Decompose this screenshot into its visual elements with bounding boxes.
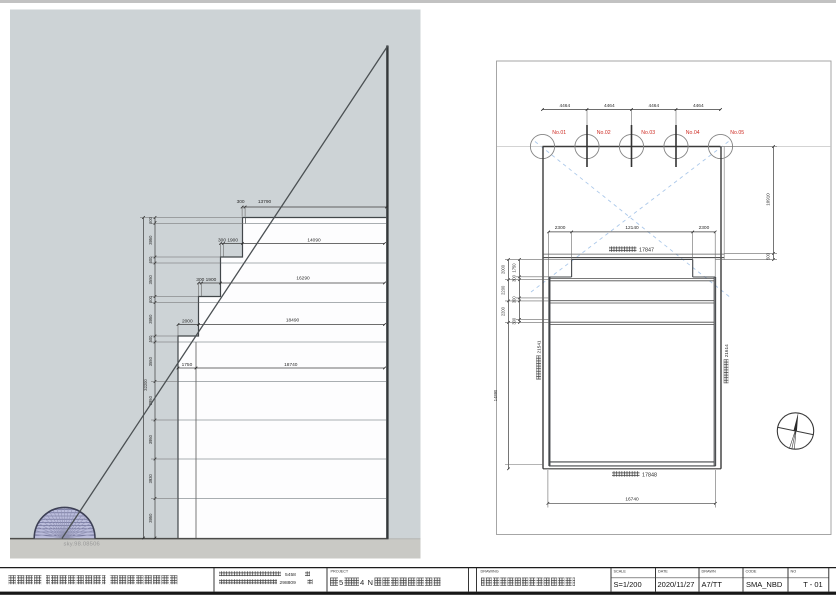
- svg-text:600: 600: [148, 295, 153, 303]
- svg-text:21614: 21614: [724, 344, 729, 357]
- svg-text:2020/11/27: 2020/11/27: [658, 580, 695, 589]
- svg-text:1750: 1750: [511, 263, 516, 273]
- svg-text:DRAWING: DRAWING: [481, 569, 499, 573]
- svg-text:21541: 21541: [536, 340, 541, 353]
- svg-text:CODE: CODE: [746, 570, 757, 574]
- svg-text:T - 01: T - 01: [803, 580, 822, 589]
- svg-text:DATE: DATE: [658, 570, 668, 574]
- svg-text:2200: 2200: [500, 306, 505, 316]
- svg-text:5458: 5458: [285, 572, 296, 578]
- svg-text:600: 600: [148, 256, 153, 264]
- svg-text:12140: 12140: [625, 225, 639, 231]
- svg-text:500: 500: [148, 335, 153, 343]
- svg-text:18490: 18490: [286, 318, 300, 324]
- svg-text:3950: 3950: [148, 513, 153, 523]
- svg-text:DRAWN: DRAWN: [702, 570, 716, 574]
- svg-text:PROJECT: PROJECT: [331, 569, 349, 573]
- svg-text:2300: 2300: [555, 225, 566, 231]
- svg-text:2200: 2200: [500, 285, 505, 295]
- svg-text:No.02: No.02: [597, 130, 611, 136]
- svg-text:No.04: No.04: [686, 130, 700, 136]
- svg-text:300: 300: [511, 274, 516, 282]
- svg-text:SMA_NBD: SMA_NBD: [746, 580, 783, 589]
- svg-text:3550: 3550: [148, 356, 153, 366]
- svg-text:3950: 3950: [148, 235, 153, 245]
- svg-text:14890: 14890: [493, 389, 498, 401]
- svg-text:NO: NO: [791, 570, 797, 574]
- svg-text:3550: 3550: [148, 275, 153, 285]
- svg-text:16290: 16290: [296, 275, 310, 281]
- svg-text:600: 600: [148, 216, 153, 224]
- svg-text:No.05: No.05: [730, 130, 744, 136]
- svg-text:2300: 2300: [699, 225, 710, 231]
- svg-text:17847: 17847: [639, 248, 654, 254]
- svg-text:14090: 14090: [307, 237, 321, 243]
- svg-text:3950: 3950: [148, 314, 153, 324]
- svg-text:3930: 3930: [148, 474, 153, 484]
- svg-text:16740: 16740: [625, 497, 639, 503]
- svg-text:No.01: No.01: [552, 130, 566, 136]
- svg-text:4464: 4464: [693, 103, 704, 109]
- svg-text:300: 300: [511, 317, 516, 325]
- svg-text:4464: 4464: [559, 103, 570, 109]
- svg-text:300: 300: [237, 199, 245, 205]
- svg-text:298809: 298809: [280, 580, 297, 586]
- svg-text:S=1/200: S=1/200: [614, 580, 642, 589]
- svg-text:18740: 18740: [284, 362, 298, 368]
- svg-text:SCALE: SCALE: [614, 570, 627, 574]
- svg-text:500: 500: [765, 252, 770, 260]
- svg-text:2000: 2000: [182, 319, 193, 325]
- svg-text:32200: 32200: [143, 379, 148, 391]
- svg-text:300 1900: 300 1900: [196, 277, 216, 283]
- svg-text:N: N: [368, 578, 373, 587]
- svg-text:300: 300: [511, 296, 516, 304]
- svg-text:No.03: No.03: [641, 130, 655, 136]
- svg-text:2000: 2000: [500, 264, 505, 274]
- svg-text:17848: 17848: [642, 472, 657, 478]
- svg-text:5: 5: [339, 578, 343, 587]
- svg-text:13790: 13790: [258, 199, 272, 205]
- svg-text:4: 4: [360, 578, 364, 587]
- svg-text:4464: 4464: [648, 103, 659, 109]
- svg-text:3950: 3950: [148, 434, 153, 444]
- svg-text:A7/TT: A7/TT: [702, 580, 723, 589]
- svg-text:1750: 1750: [182, 362, 193, 368]
- svg-text:4464: 4464: [604, 103, 615, 109]
- svg-text:300 1900: 300 1900: [218, 238, 238, 244]
- svg-text:10910: 10910: [765, 193, 770, 206]
- svg-text:sky.98.08506: sky.98.08506: [64, 541, 100, 547]
